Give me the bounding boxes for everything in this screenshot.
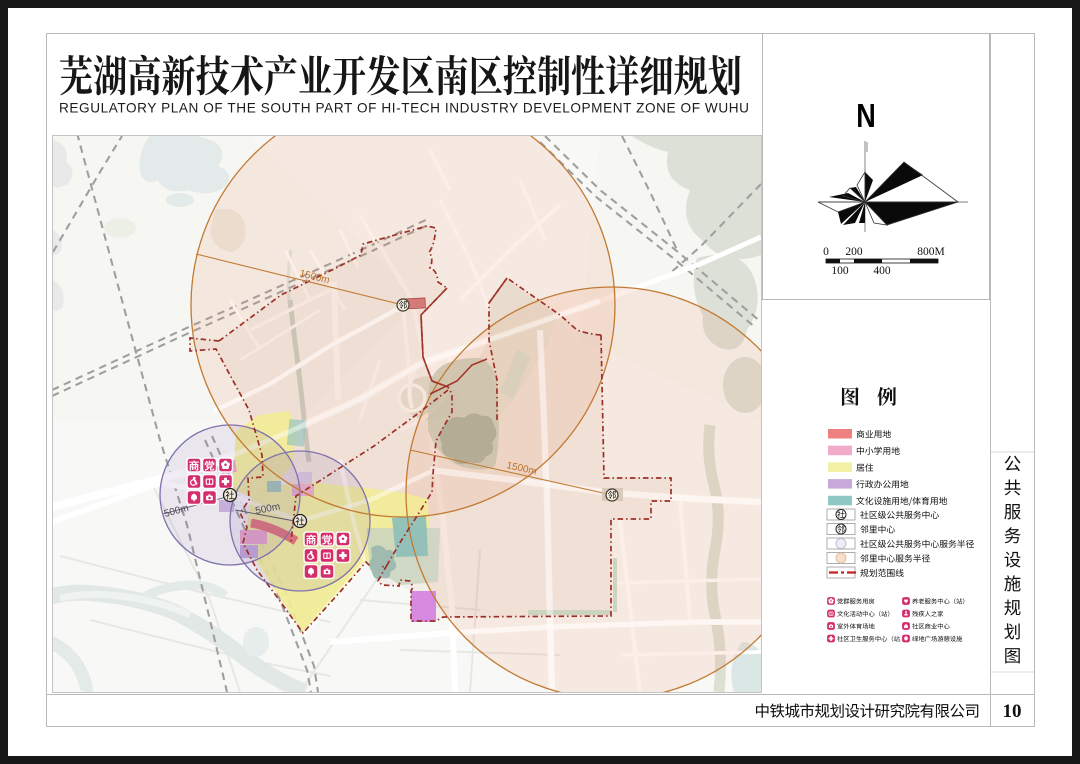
svg-text:N: N (856, 99, 876, 135)
svg-text:200: 200 (845, 246, 863, 258)
svg-text:0: 0 (823, 246, 829, 258)
svg-text:100: 100 (831, 265, 849, 277)
svg-text:10: 10 (1003, 701, 1022, 722)
svg-text:800M: 800M (917, 246, 944, 258)
svg-text:400: 400 (873, 265, 891, 277)
svg-text:REGULATORY PLAN OF THE SOUTH P: REGULATORY PLAN OF THE SOUTH PART OF HI-… (59, 101, 750, 116)
